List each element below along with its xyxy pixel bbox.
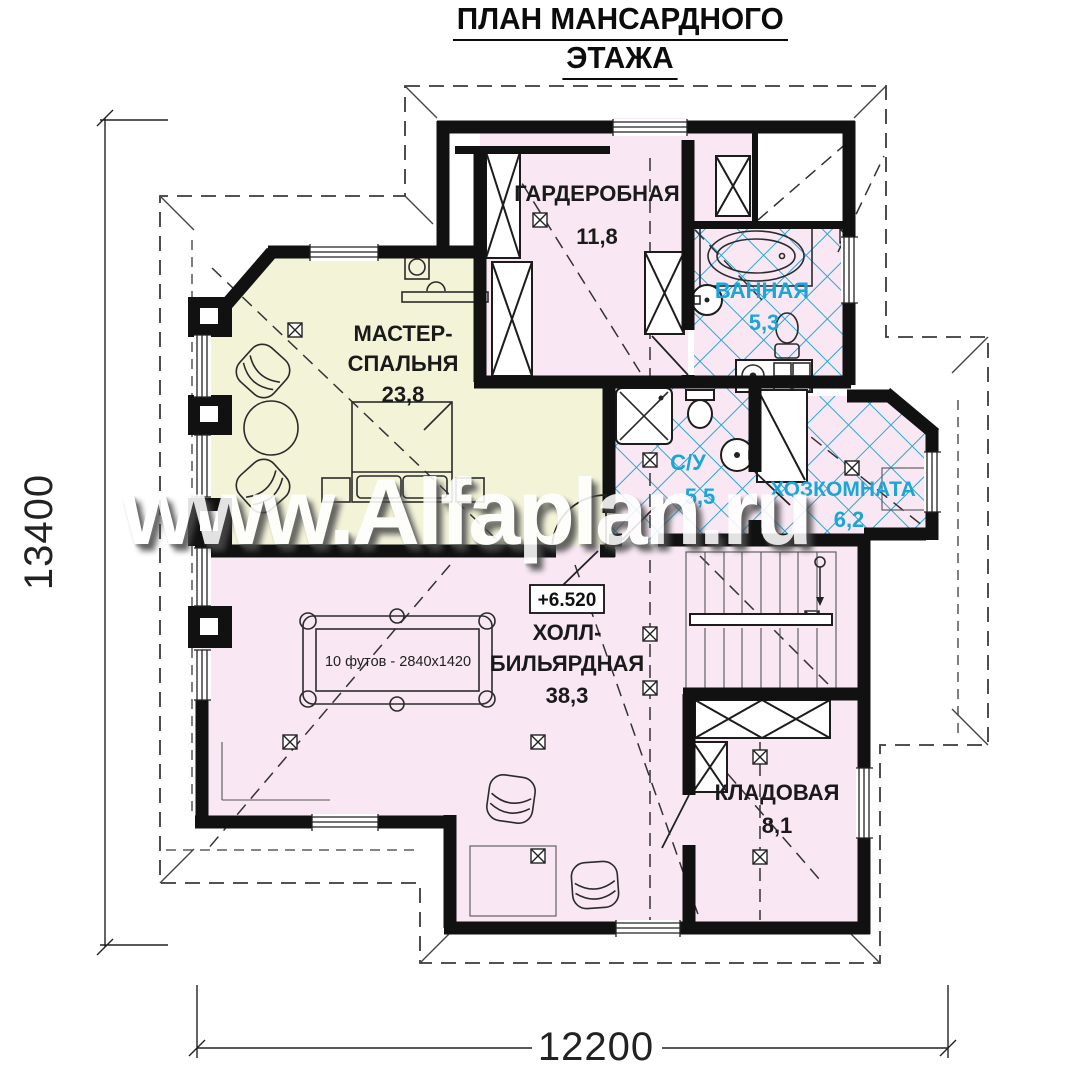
floor-plan-drawing: ГАРДЕРОБНАЯ 11,8 ВАННАЯ 5,3 МАСТЕР- СПАЛ… [0,0,1080,1080]
master-bedroom-label-1: МАСТЕР- [353,321,452,346]
roof-slope-void [755,133,847,225]
storage-label: КЛАДОВАЯ [715,780,840,805]
hall-label-1: ХОЛЛ- [533,620,602,645]
floor-plan-page: ГАРДЕРОБНАЯ 11,8 ВАННАЯ 5,3 МАСТЕР- СПАЛ… [0,0,1080,1080]
window [194,435,211,497]
window [613,119,687,136]
window [194,548,211,606]
window [310,244,378,261]
window [312,814,378,831]
dimension-width-text: 12200 [538,1025,654,1069]
title-line-1: ПЛАН МАНСАРДНОГО [453,2,788,41]
dimension-left: 13400 [17,110,168,955]
window [194,650,211,700]
dimension-bottom: 12200 [189,985,956,1069]
title-line-2: ЭТАЖА [562,41,677,80]
billiard-table-label: 10 футов - 2840x1420 [325,654,471,670]
dimension-height-text: 13400 [17,474,61,590]
hall-label-2: БИЛЬЯРДНАЯ [490,651,644,676]
bathroom-area: 5,3 [749,310,780,335]
wardrobe-label: ГАРДЕРОБНАЯ [514,181,680,206]
wardrobe-area: 11,8 [576,224,618,249]
wc-area: 5,5 [685,484,716,509]
hall-area: 38,3 [546,683,589,708]
storage-area: 8,1 [762,813,793,838]
utility-label: ХОЗКОМНАТА [770,478,916,501]
window [924,452,941,512]
drawing-title: ПЛАН МАНСАРДНОГО ЭТАЖА [380,2,860,80]
master-bedroom-area: 23,8 [382,382,425,407]
wc-label: С/У [670,450,706,475]
elevation-mark: +6.520 [530,585,604,613]
bathroom-label: ВАННАЯ [715,278,809,303]
elevation-mark-text: +6.520 [538,590,597,611]
utility-cabinet-symbol [757,390,807,482]
window [194,335,211,397]
window [856,768,873,838]
utility-area: 6,2 [834,507,865,532]
master-bedroom-label-2: СПАЛЬНЯ [348,351,459,376]
window [841,237,858,303]
shower-symbol [616,388,672,444]
wall-toilet-symbol [686,390,714,428]
room-fills [201,118,932,928]
stair-handrail [690,614,832,625]
window [616,920,680,937]
